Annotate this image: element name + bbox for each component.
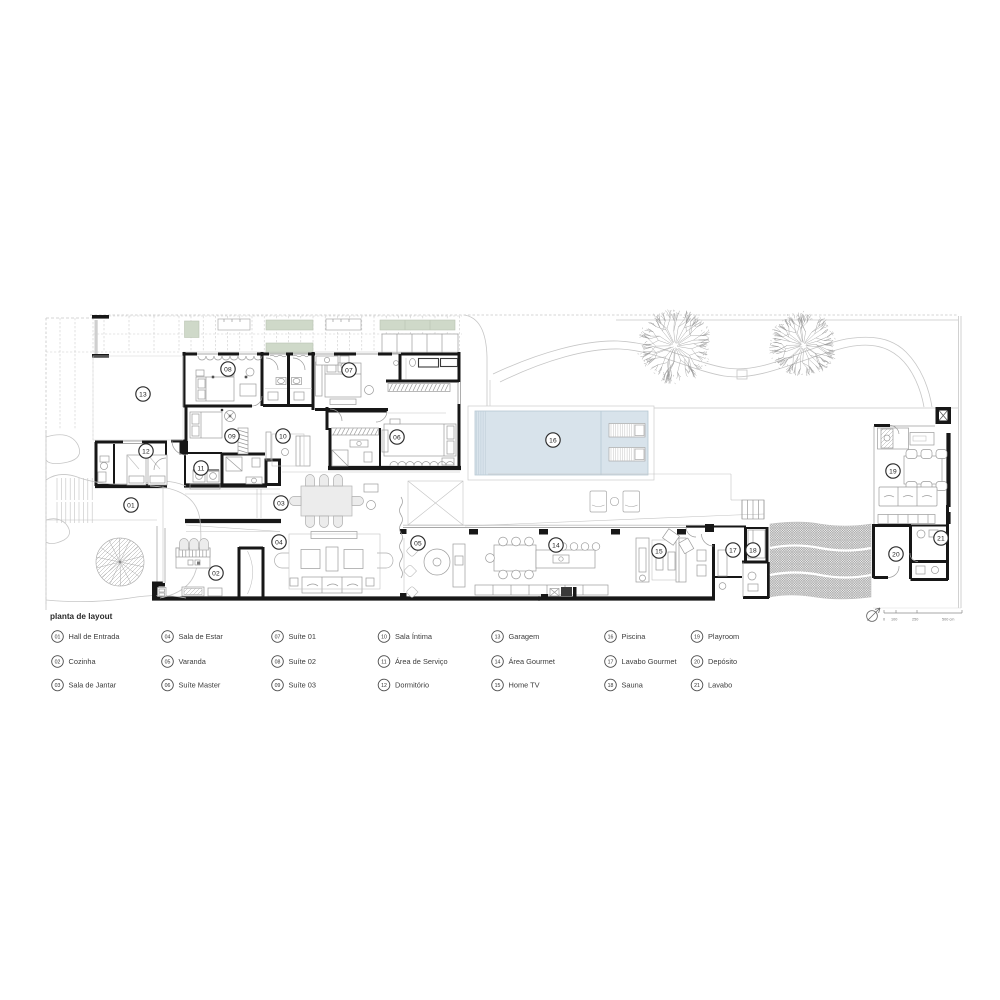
svg-text:13: 13 [495, 635, 501, 641]
svg-text:05: 05 [414, 540, 422, 547]
svg-text:12: 12 [381, 683, 387, 689]
svg-text:Sauna: Sauna [622, 681, 644, 690]
svg-text:04: 04 [165, 635, 171, 641]
svg-text:Área Gourmet: Área Gourmet [509, 657, 555, 666]
svg-text:Suíte 01: Suíte 01 [289, 632, 317, 641]
svg-text:06: 06 [393, 434, 401, 441]
svg-text:05: 05 [165, 660, 171, 666]
svg-text:06: 06 [165, 683, 171, 689]
svg-text:0: 0 [883, 618, 885, 622]
svg-text:planta de layout: planta de layout [50, 612, 113, 621]
svg-text:Piscina: Piscina [622, 632, 647, 641]
svg-text:16: 16 [608, 635, 614, 641]
svg-text:100: 100 [891, 618, 897, 622]
svg-text:02: 02 [212, 570, 220, 577]
svg-text:19: 19 [694, 635, 700, 641]
svg-text:21: 21 [694, 683, 700, 689]
svg-text:14: 14 [495, 660, 501, 666]
svg-text:03: 03 [55, 683, 61, 689]
svg-text:11: 11 [197, 465, 204, 472]
svg-text:Sala de Jantar: Sala de Jantar [69, 681, 117, 690]
svg-text:Sala de Estar: Sala de Estar [179, 632, 224, 641]
svg-text:Hall de Entrada: Hall de Entrada [69, 632, 121, 641]
svg-text:Suíte Master: Suíte Master [179, 681, 221, 690]
svg-text:12: 12 [142, 448, 150, 455]
svg-text:20: 20 [892, 551, 900, 558]
svg-text:Dormitório: Dormitório [395, 681, 429, 690]
svg-text:Suíte 02: Suíte 02 [289, 657, 317, 666]
svg-text:07: 07 [275, 635, 281, 641]
svg-text:03: 03 [277, 500, 285, 507]
svg-text:Área de Serviço: Área de Serviço [395, 657, 448, 666]
svg-text:Lavabo: Lavabo [708, 681, 732, 690]
svg-text:02: 02 [55, 660, 61, 666]
svg-text:16: 16 [549, 437, 557, 444]
svg-text:Sala Íntima: Sala Íntima [395, 632, 433, 641]
svg-text:07: 07 [345, 367, 353, 374]
svg-text:14: 14 [552, 542, 560, 549]
svg-text:18: 18 [749, 547, 757, 554]
svg-text:Garagem: Garagem [509, 632, 540, 641]
svg-text:08: 08 [224, 366, 232, 373]
svg-text:10: 10 [381, 635, 387, 641]
svg-text:Suíte 03: Suíte 03 [289, 681, 317, 690]
svg-text:Home TV: Home TV [509, 681, 540, 690]
svg-text:20: 20 [694, 660, 700, 666]
svg-text:19: 19 [889, 468, 897, 475]
svg-text:15: 15 [495, 683, 501, 689]
svg-text:18: 18 [608, 683, 614, 689]
svg-text:17: 17 [729, 547, 737, 554]
svg-text:Playroom: Playroom [708, 632, 739, 641]
svg-text:17: 17 [608, 660, 614, 666]
svg-text:10: 10 [279, 433, 287, 440]
svg-text:09: 09 [228, 433, 236, 440]
svg-text:Depósito: Depósito [708, 657, 737, 666]
svg-text:04: 04 [275, 539, 283, 546]
svg-text:15: 15 [655, 548, 663, 555]
svg-text:21: 21 [937, 535, 945, 542]
svg-text:13: 13 [139, 391, 147, 398]
svg-text:01: 01 [127, 502, 135, 509]
svg-text:09: 09 [275, 683, 281, 689]
svg-text:Varanda: Varanda [179, 657, 207, 666]
svg-text:250: 250 [912, 618, 918, 622]
svg-text:08: 08 [275, 660, 281, 666]
svg-text:Lavabo Gourmet: Lavabo Gourmet [622, 657, 677, 666]
svg-text:500 cm: 500 cm [942, 618, 954, 622]
svg-text:01: 01 [55, 635, 61, 641]
svg-text:11: 11 [381, 660, 386, 666]
svg-text:Cozinha: Cozinha [69, 657, 97, 666]
